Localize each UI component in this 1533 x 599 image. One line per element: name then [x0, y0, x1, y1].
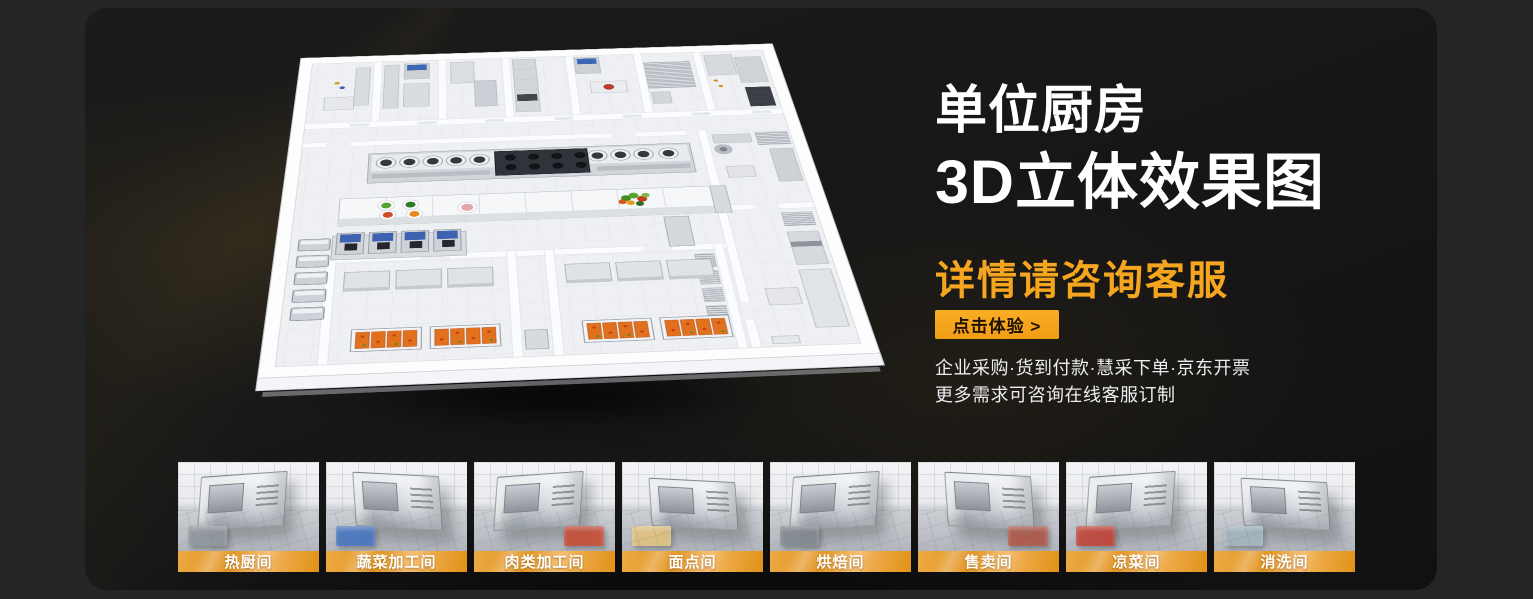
banner-stage: 单位厨房 3D立体效果图 详情请咨询客服 点击体验 > 企业采购·货到付款·慧采…	[0, 0, 1533, 599]
kitchen-equipment-graphic	[352, 472, 442, 530]
accent-graphic	[1076, 526, 1115, 546]
kitchen-equipment-graphic	[1085, 471, 1175, 531]
kitchen-equipment-graphic	[789, 471, 879, 531]
accent-graphic	[188, 526, 227, 546]
thumbnail-image	[474, 462, 615, 551]
thumbnail-washing-room[interactable]: 消洗间	[1214, 462, 1355, 572]
thumbnail-cold-dish-room[interactable]: 凉菜间	[1066, 462, 1207, 572]
thumbnail-label: 凉菜间	[1066, 551, 1207, 572]
title-line-2: 3D立体效果图	[935, 132, 1325, 221]
thumbnail-sales-room[interactable]: 售卖间	[918, 462, 1059, 572]
description-line-1: 企业采购·货到付款·慧采下单·京东开票	[935, 354, 1250, 380]
thumbnail-label: 消洗间	[1214, 551, 1355, 572]
kitchen-equipment-graphic	[197, 471, 287, 531]
description-line-2: 更多需求可咨询在线客服订制	[935, 381, 1176, 407]
accent-graphic	[564, 526, 603, 546]
thumbnail-baking-room[interactable]: 烘焙间	[770, 462, 911, 572]
thumbnail-image	[178, 462, 319, 551]
accent-graphic	[336, 526, 375, 546]
banner-panel: 单位厨房 3D立体效果图 详情请咨询客服 点击体验 > 企业采购·货到付款·慧采…	[85, 8, 1437, 590]
thumbnail-hot-kitchen[interactable]: 热厨间	[178, 462, 319, 572]
kitchen-3d-floorplan	[252, 43, 889, 400]
thumbnail-meat-processing[interactable]: 肉类加工间	[474, 462, 615, 572]
thumbnail-label: 售卖间	[918, 551, 1059, 572]
thumbnail-image	[326, 462, 467, 551]
subtitle: 详情请咨询客服	[935, 248, 1229, 306]
thumbnail-image	[622, 462, 763, 551]
accent-graphic	[1008, 526, 1047, 546]
kitchen-equipment-graphic	[1241, 477, 1331, 530]
kitchen-equipment-graphic	[944, 472, 1034, 530]
thumbnail-label: 肉类加工间	[474, 551, 615, 572]
thumbnail-label: 面点间	[622, 551, 763, 572]
kitchen-equipment-graphic	[493, 471, 583, 531]
accent-graphic	[780, 526, 819, 546]
thumbnail-label: 热厨间	[178, 551, 319, 572]
kitchen-equipment-graphic	[649, 477, 739, 530]
thumbnail-label: 烘焙间	[770, 551, 911, 572]
thumbnail-image	[1214, 462, 1355, 551]
room-thumbnail-strip: 热厨间 蔬菜加工间 肉类加工间 面点间 烘焙间 售卖间	[178, 462, 1355, 572]
thumbnail-image	[770, 462, 911, 551]
thumbnail-image	[918, 462, 1059, 551]
cta-button[interactable]: 点击体验 >	[935, 310, 1059, 339]
accent-graphic	[632, 526, 671, 546]
thumbnail-pastry-room[interactable]: 面点间	[622, 462, 763, 572]
thumbnail-image	[1066, 462, 1207, 551]
thumbnail-label: 蔬菜加工间	[326, 551, 467, 572]
accent-graphic	[1224, 526, 1263, 546]
thumbnail-vegetable-processing[interactable]: 蔬菜加工间	[326, 462, 467, 572]
